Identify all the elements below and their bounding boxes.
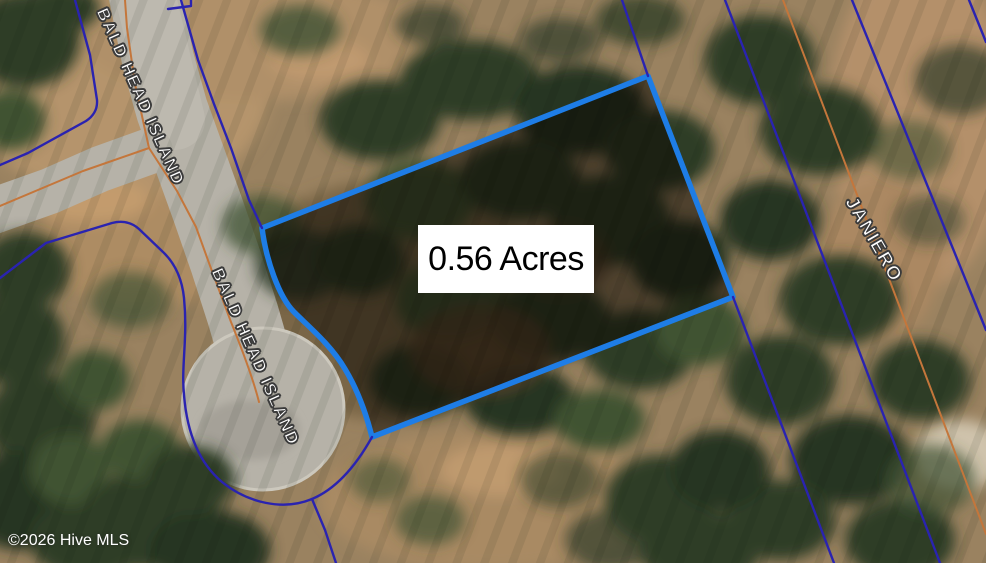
acreage-label: 0.56 Acres: [428, 240, 584, 279]
aerial-parcel-map: BALD HEAD ISLAND BALD HEAD ISLAND JANIER…: [0, 0, 986, 563]
acreage-callout: 0.56 Acres: [418, 225, 594, 293]
copyright-watermark: ©2026 Hive MLS: [8, 532, 129, 550]
